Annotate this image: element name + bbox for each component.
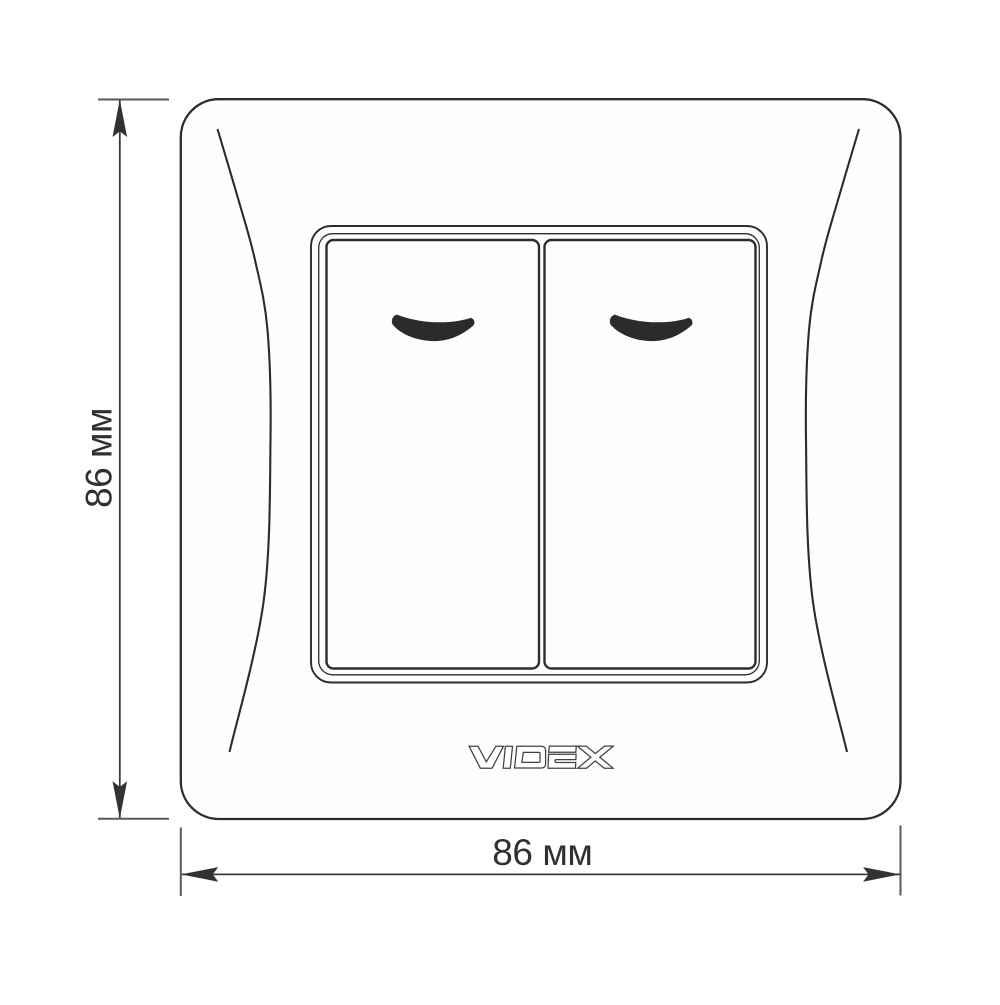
svg-text:86 мм: 86 мм xyxy=(492,832,592,873)
svg-text:86 мм: 86 мм xyxy=(79,408,120,508)
